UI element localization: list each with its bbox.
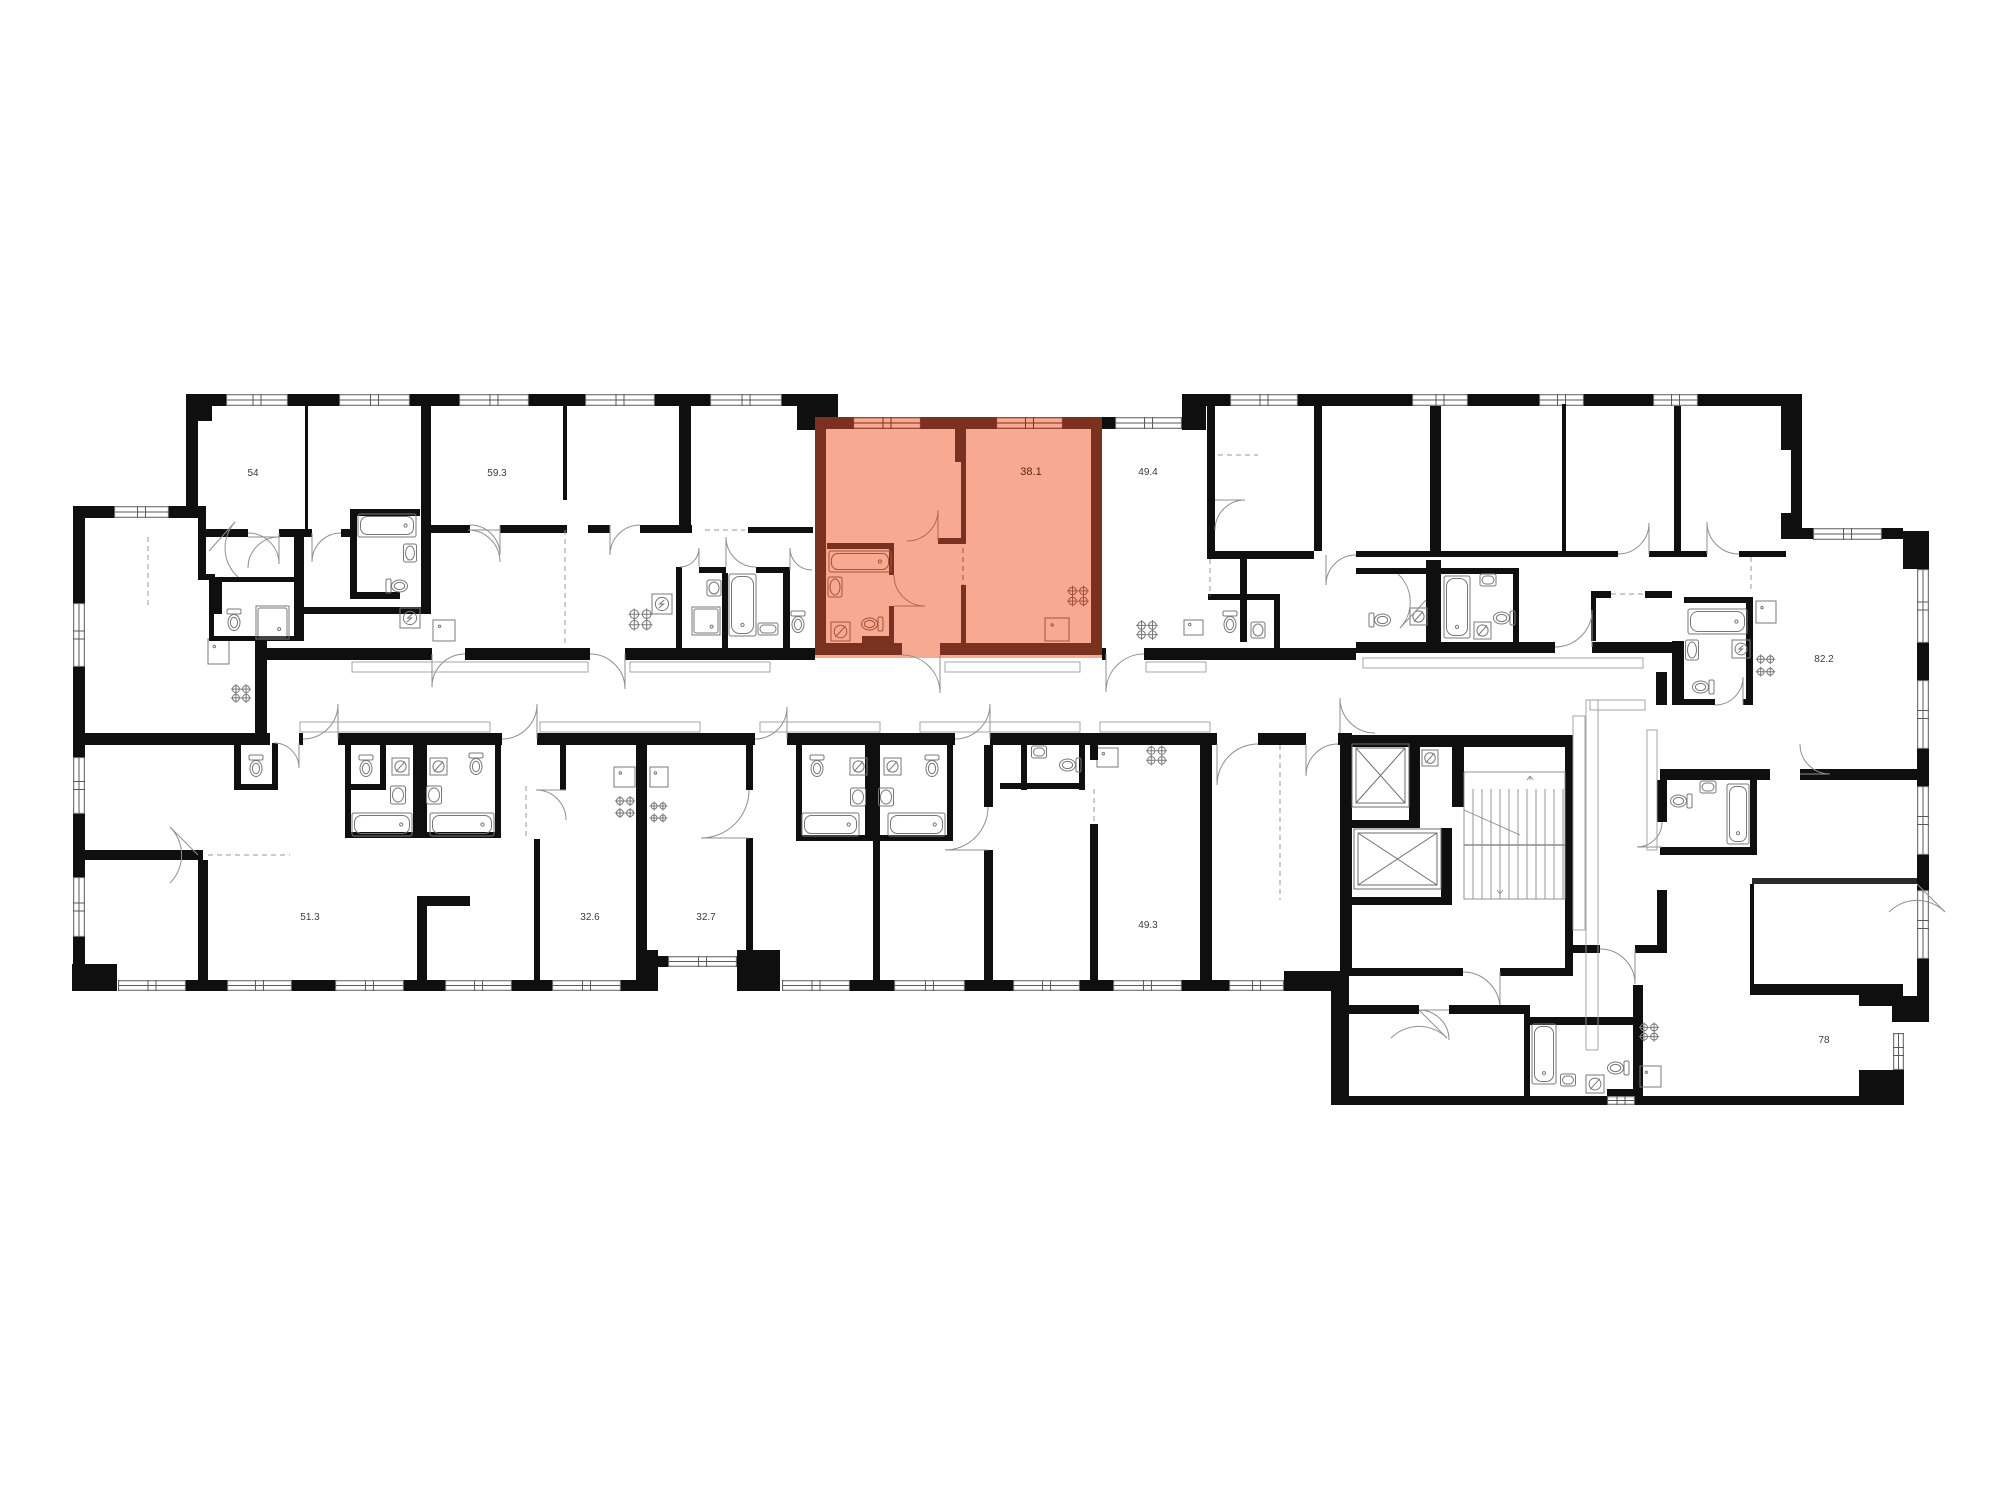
svg-text:78: 78 xyxy=(1818,1035,1830,1046)
svg-text:38.1: 38.1 xyxy=(1020,466,1041,478)
svg-text:32.7: 32.7 xyxy=(696,912,716,923)
svg-text:82.2: 82.2 xyxy=(1814,654,1834,665)
svg-text:59.3: 59.3 xyxy=(487,468,507,479)
svg-text:49.4: 49.4 xyxy=(1138,467,1158,478)
svg-text:51.3: 51.3 xyxy=(300,912,320,923)
svg-text:49.3: 49.3 xyxy=(1138,920,1158,931)
svg-text:54: 54 xyxy=(247,468,259,479)
svg-text:32.6: 32.6 xyxy=(580,912,600,923)
